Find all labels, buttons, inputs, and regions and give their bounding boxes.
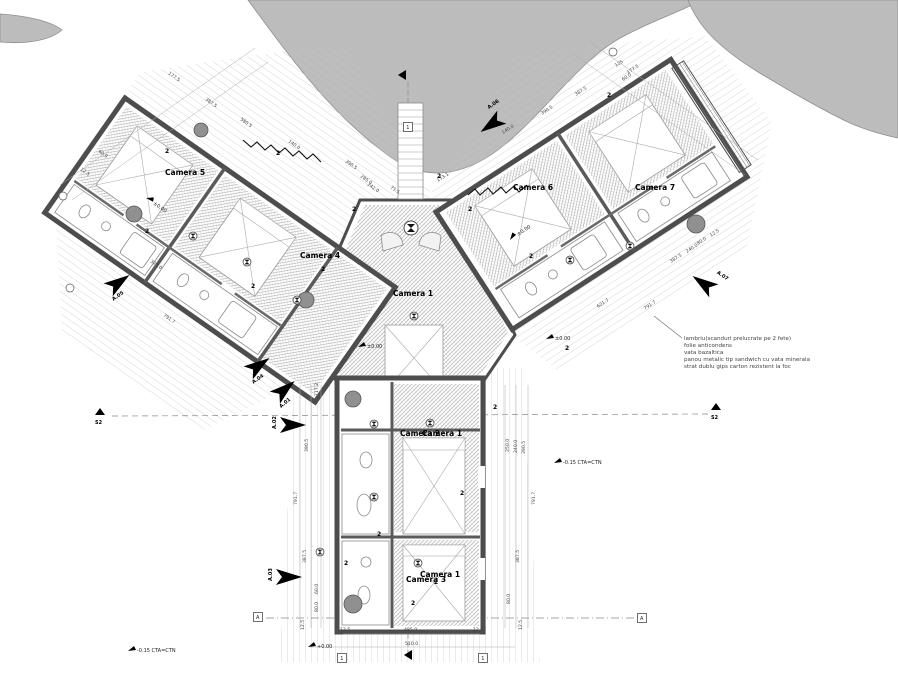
dim: 390.5 <box>521 441 527 454</box>
section-label: S2 <box>95 420 103 426</box>
dim: 791.7 <box>531 492 537 505</box>
door-tag: 2 <box>607 92 611 99</box>
dim: 12.5 <box>518 620 524 630</box>
door-tag: 2 <box>377 531 381 538</box>
dim: 390.5 <box>304 439 310 452</box>
dim: 12.5 <box>300 620 306 630</box>
dim: 485.0 <box>404 627 417 633</box>
grid-label: 1 <box>406 125 409 131</box>
dim: 240.0 <box>513 440 519 453</box>
grid-bubble <box>59 192 67 200</box>
room-label-camera1b: Camera 1 <box>422 429 462 438</box>
room-label-camera4: Camera 4 <box>300 251 340 260</box>
section-marker-s2-right: S2 <box>711 403 721 421</box>
annotation-line: strat dublu gips carton rezistent la foc <box>684 364 791 370</box>
dim: 60.0 <box>314 584 320 594</box>
door-tag: 2 <box>411 600 415 607</box>
door-gap <box>478 558 485 580</box>
section-label: A.07 <box>715 270 729 283</box>
grid-box-1-top: 1 <box>404 123 413 132</box>
dim: 510.0 <box>405 641 418 647</box>
grid-box-1-bottom-right: 1 <box>479 654 488 663</box>
door-tag: 2 <box>352 206 356 213</box>
floor-plan: 177.5 387.5 140.0 390.5 285.0 242.0 580.… <box>0 0 898 687</box>
elevation-label: +0.00 <box>317 644 332 650</box>
elevation-label: ±0.00 <box>367 344 382 350</box>
section-marker-s2-left: S2 <box>95 408 105 426</box>
annotation-line: lambriu(scanduri prelucrate pe 2 fete) <box>684 336 791 342</box>
elevation-minus-right: -0.15 CTA=CTN <box>554 458 602 466</box>
door-tag: 2 <box>565 345 569 352</box>
dim: 80.0 <box>314 602 320 612</box>
elevation-label: -0.15 CTA=CTN <box>563 460 602 466</box>
bed-camera2 <box>403 438 465 534</box>
grid-box-a-right: A <box>638 614 647 623</box>
door-tag: 2 <box>321 266 325 273</box>
door-tag: 2 <box>251 283 255 290</box>
grid-box-a-left: A <box>254 613 263 622</box>
room-label-camera5: Camera 5 <box>165 168 205 177</box>
grid-label: 1 <box>340 656 343 662</box>
dim: 12.5 <box>340 627 350 633</box>
section-label: A.02 <box>272 416 278 429</box>
elevation-label: -0.15 CTA=CTN <box>137 648 176 654</box>
wing-bottom <box>337 378 485 632</box>
annotation-line: folie anticondens <box>684 343 732 349</box>
elevation-label: ±0.00 <box>555 336 570 342</box>
section-label: A.03 <box>268 568 274 581</box>
door-tag: 2 <box>165 148 169 155</box>
room-label-camera6: Camera 6 <box>513 183 553 192</box>
dim: 791.7 <box>293 492 299 505</box>
dim: 387.5 <box>302 550 308 563</box>
door-tag: 2 <box>276 150 280 157</box>
room-label-camera7: Camera 7 <box>635 183 675 192</box>
door-tag: 2 <box>529 253 533 260</box>
dim: 12.5 <box>473 627 483 633</box>
grid-bubble <box>609 48 617 56</box>
dim: 80.0 <box>506 594 512 604</box>
grid-label: 1 <box>481 656 484 662</box>
grid-box-1-bottom-left: 1 <box>338 654 347 663</box>
door-gap <box>478 466 485 488</box>
floor-plan-canvas: 177.5 387.5 140.0 390.5 285.0 242.0 580.… <box>0 0 898 687</box>
annotation-line: panou metalic tip sandwich cu vata miner… <box>684 357 810 363</box>
room-label-camera3: Camera 3 <box>406 575 446 584</box>
room-label-camera1: Camera 1 <box>393 289 433 298</box>
door-tag: 2 <box>493 404 497 411</box>
door-tag: 2 <box>344 560 348 567</box>
door-tag: 2 <box>460 490 464 497</box>
annotation-line: vata bazaltica <box>684 350 723 356</box>
door-tag: 2 <box>145 228 149 235</box>
material-annotation: lambriu(scanduri prelucrate pe 2 fete) f… <box>654 316 810 370</box>
terrain-blob-small <box>0 14 62 43</box>
dim: 387.5 <box>515 550 521 563</box>
entrance-stairs <box>398 103 423 199</box>
door-tag: 2 <box>437 173 441 180</box>
grid-label: A <box>256 615 260 621</box>
grid-label: A <box>640 616 644 622</box>
dim: 250.0 <box>505 439 511 452</box>
section-label: S2 <box>711 415 719 421</box>
dim: 717.2 <box>314 383 320 396</box>
door-tag: 2 <box>434 579 438 586</box>
grid-bubble <box>66 284 74 292</box>
elevation-minus-left: -0.15 CTA=CTN <box>128 646 176 654</box>
door-tag: 2 <box>468 206 472 213</box>
